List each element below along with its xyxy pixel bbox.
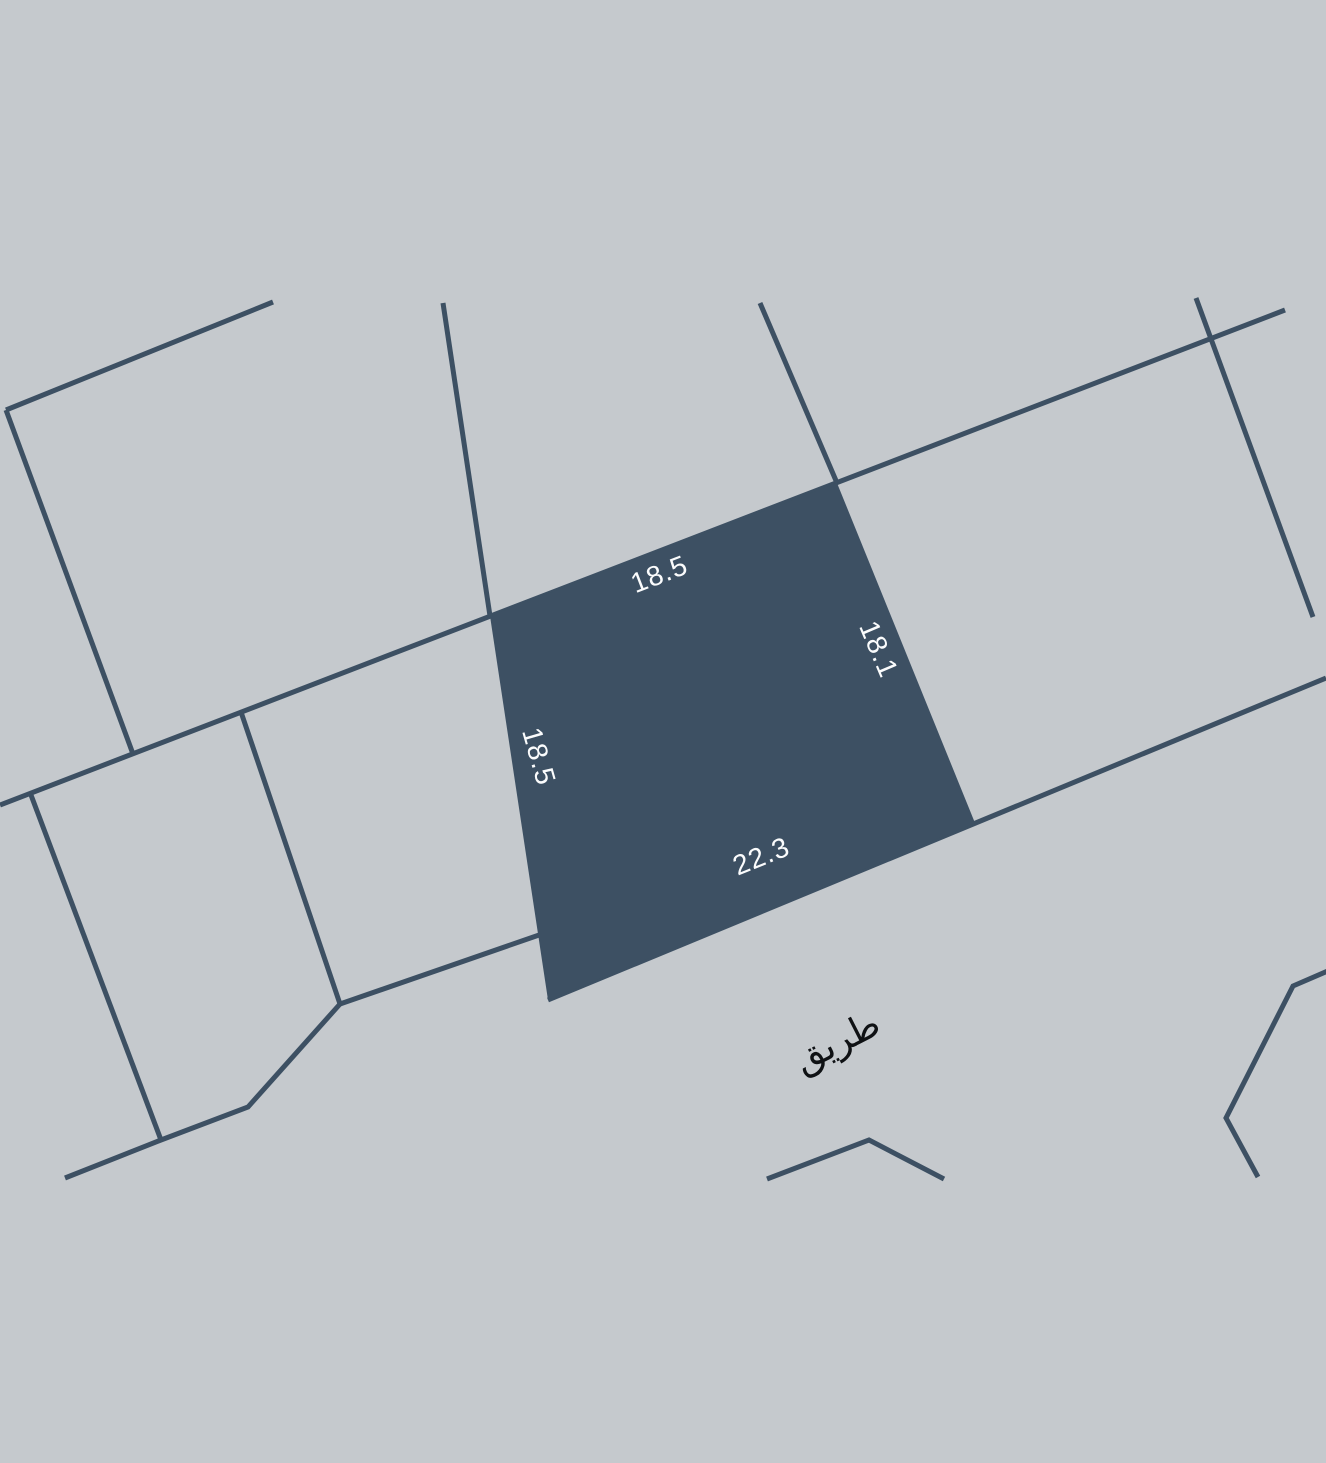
- map-canvas[interactable]: 18.5 18.1 18.5 22.3 طريق: [0, 0, 1326, 1463]
- cadastral-map-viewport[interactable]: 18.5 18.1 18.5 22.3 طريق: [0, 0, 1326, 1463]
